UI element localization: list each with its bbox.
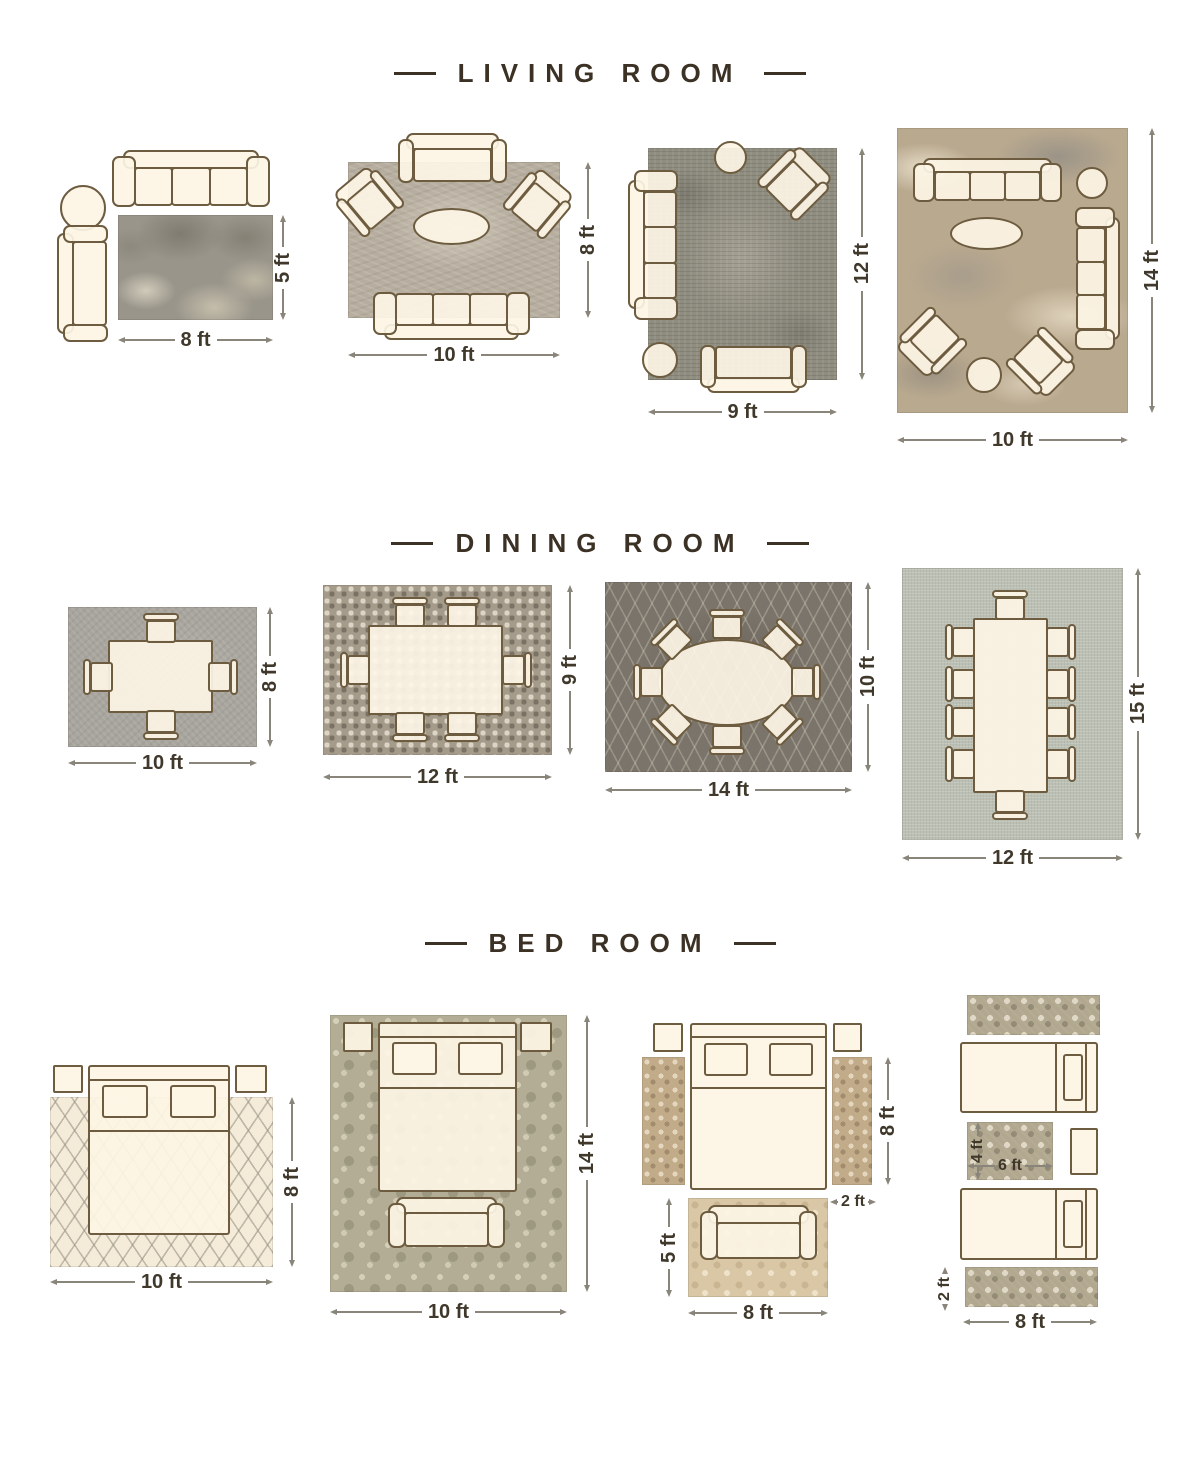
pillow — [102, 1085, 148, 1118]
dim-line — [330, 776, 411, 778]
chair-seat — [952, 669, 975, 699]
dim-line — [1151, 135, 1153, 244]
dim-line — [291, 1203, 293, 1260]
dining-chair — [1046, 746, 1076, 782]
chair-seat — [712, 616, 742, 639]
dimension-10-ft: 10 ft — [348, 346, 560, 364]
dimension-2-ft: 2 ft — [936, 1267, 954, 1307]
dim-arrow-start — [975, 1122, 981, 1129]
dimension-8-ft: 8 ft — [963, 1313, 1097, 1331]
seat-cushion — [1076, 294, 1107, 330]
dim-line — [668, 1205, 670, 1227]
seat-cushion — [715, 346, 792, 379]
bed — [88, 1065, 230, 1235]
sofa-arm-right — [1075, 329, 1115, 350]
dimension-12-ft: 12 ft — [853, 148, 871, 380]
dim-arrow-start — [348, 352, 355, 358]
dim-line — [291, 1104, 293, 1161]
dim-arrow-end — [1149, 406, 1155, 413]
dimension-10-ft: 10 ft — [897, 431, 1128, 449]
title-dash-left — [425, 942, 467, 945]
seat-cushion — [171, 167, 210, 206]
dim-line — [887, 1142, 889, 1178]
dimension-10-ft: 10 ft — [50, 1273, 273, 1291]
dimension-12-ft: 12 ft — [323, 768, 552, 786]
side-table-round — [1076, 167, 1108, 199]
dining-chair — [709, 609, 745, 639]
ottoman-round — [642, 342, 678, 378]
dimension-10-ft: 10 ft — [68, 754, 257, 772]
dimension-14-ft: 14 ft — [578, 1015, 596, 1292]
dining-chair — [340, 652, 370, 688]
blanket — [692, 1087, 825, 1188]
dimension-label: 10 ft — [135, 1272, 188, 1292]
dining-chair-right — [208, 659, 238, 695]
dim-line — [668, 1269, 670, 1291]
chair-back — [230, 659, 238, 695]
dim-arrow-end — [553, 352, 560, 358]
dining-chair — [945, 704, 975, 740]
dining-chair — [392, 597, 428, 627]
chair-seat — [208, 662, 231, 692]
rug-size-placement-guide: LIVING ROOM DINING ROOM BED ROOM 8 ft5 f… — [0, 0, 1200, 1467]
dim-line — [481, 354, 553, 356]
seat-cushion — [1004, 171, 1041, 201]
sofa-arm-left — [791, 345, 807, 388]
dim-line — [587, 261, 589, 311]
headboard — [1085, 1044, 1096, 1111]
dim-arrow-end — [267, 740, 273, 747]
dining-chair — [945, 746, 975, 782]
pillow — [458, 1042, 503, 1075]
sofa-seats — [413, 148, 492, 182]
dim-line — [1039, 439, 1121, 441]
dim-line — [909, 857, 986, 859]
dimension-9-ft: 9 ft — [648, 403, 837, 421]
dimension-2-ft: 2 ft — [830, 1193, 876, 1211]
dim-arrow-end — [584, 1285, 590, 1292]
dim-line — [217, 339, 267, 341]
dim-arrow-end — [942, 1304, 948, 1311]
dim-arrow-end — [1121, 437, 1128, 443]
chair-seat — [146, 620, 176, 643]
runner-rug-bottom-8x2 — [965, 1267, 1098, 1307]
sofa-seats — [715, 346, 792, 379]
loveseat — [57, 225, 108, 342]
chair-seat — [347, 655, 370, 685]
chair-seat — [395, 604, 425, 627]
chair-back — [1068, 666, 1076, 702]
seat-cushion — [432, 293, 471, 326]
dining-chair — [791, 664, 821, 700]
dining-chair — [1046, 666, 1076, 702]
sofa-3-seat — [112, 150, 270, 207]
nightstand — [1070, 1128, 1098, 1175]
runner-rug-top-8x2 — [967, 995, 1100, 1035]
nightstand-right — [833, 1023, 862, 1052]
dim-line — [1151, 297, 1153, 406]
dim-line — [125, 339, 175, 341]
dimension-14-ft: 14 ft — [605, 781, 852, 799]
dim-arrow-start — [585, 162, 591, 169]
living-arrangement-4: 10 ft14 ft — [880, 112, 1185, 462]
dim-line — [464, 776, 545, 778]
chair-seat — [712, 725, 742, 748]
dim-line — [861, 155, 863, 237]
dim-arrow-end — [1135, 833, 1141, 840]
dimension-label: 12 ft — [986, 848, 1039, 868]
dimension-8-ft: 8 ft — [118, 331, 273, 349]
dim-line — [282, 222, 284, 247]
dim-line — [586, 1022, 588, 1127]
title-dash-right — [734, 942, 776, 945]
seat-cushion — [934, 171, 971, 201]
dining-chair — [1046, 624, 1076, 660]
dim-arrow-start — [323, 774, 330, 780]
dimension-label: 2 ft — [838, 1194, 868, 1210]
seat-cushion — [469, 293, 508, 326]
dim-arrow-end — [885, 1178, 891, 1185]
dim-arrow-end — [1116, 855, 1123, 861]
dining-chair — [444, 597, 480, 627]
sofa-arm-right — [246, 156, 270, 207]
seat-cushion — [404, 1212, 488, 1247]
chair-seat — [146, 710, 176, 733]
dim-line — [861, 291, 863, 373]
dining-chair — [502, 652, 532, 688]
dimension-8-ft: 8 ft — [283, 1097, 301, 1267]
dim-arrow-end — [266, 1279, 273, 1285]
dim-line — [282, 289, 284, 314]
bedroom-arrangement-2: 10 ft14 ft — [325, 1010, 610, 1325]
pillow — [170, 1085, 216, 1118]
dining-arrangement-2: 12 ft9 ft — [320, 580, 600, 795]
headboard — [380, 1024, 515, 1038]
sofa-arm-left — [506, 292, 530, 335]
dim-arrow-start — [865, 582, 871, 589]
seat-cushion — [1076, 261, 1107, 297]
chair-seat — [640, 667, 663, 697]
chair-seat — [952, 707, 975, 737]
title-dash-right — [767, 542, 809, 545]
seat-cushion — [72, 241, 107, 325]
dining-chair — [992, 590, 1028, 620]
dimension-15-ft: 15 ft — [1129, 568, 1147, 840]
dim-arrow-end — [567, 748, 573, 755]
dining-arrangement-4: 12 ft15 ft — [900, 565, 1165, 880]
living-arrangement-1: 8 ft5 ft — [50, 138, 320, 378]
seat-cushion — [134, 167, 173, 206]
sofa-back — [707, 377, 799, 393]
title-dash-left — [391, 542, 433, 545]
dim-arrow-start — [885, 1057, 891, 1064]
pillow — [769, 1043, 813, 1076]
dim-arrow-start — [902, 855, 909, 861]
dim-line — [764, 411, 831, 413]
dim-line — [337, 1311, 422, 1313]
seat-cushion — [643, 262, 677, 299]
dim-line — [269, 698, 271, 740]
nightstand-left — [653, 1023, 683, 1052]
dimension-9-ft: 9 ft — [561, 585, 579, 755]
runner-rug-right-2x8 — [832, 1057, 872, 1185]
dining-table — [973, 618, 1048, 793]
sofa-arm-left — [634, 298, 679, 321]
chair-seat — [1046, 707, 1069, 737]
section-title-bed-room: BED ROOM — [0, 928, 1200, 959]
dim-arrow-start — [942, 1267, 948, 1274]
seat-cushion — [395, 293, 434, 326]
chair-seat — [1046, 749, 1069, 779]
dimension-label: 15 ft — [1128, 677, 1148, 730]
dim-arrow-start — [267, 607, 273, 614]
dining-chair — [945, 624, 975, 660]
bedroom-arrangement-3: 8 ft2 ft5 ft8 ft — [630, 1020, 915, 1330]
chair-back — [709, 747, 745, 755]
sofa-seats — [72, 241, 107, 325]
sofa-arm-left — [913, 163, 935, 202]
dimension-5-ft: 5 ft — [660, 1198, 678, 1297]
dim-line — [75, 762, 136, 764]
dim-arrow-end — [845, 787, 852, 793]
dimension-6-ft: 6 ft — [967, 1157, 1053, 1175]
dim-arrow-start — [330, 1309, 337, 1315]
pillow — [392, 1042, 437, 1075]
dining-chair — [945, 666, 975, 702]
dim-arrow-start — [1135, 568, 1141, 575]
runner-rug-left-2x8 — [642, 1057, 685, 1185]
dim-arrow-end — [830, 409, 837, 415]
blanket — [380, 1087, 515, 1190]
dimension-label: 8 ft — [175, 330, 217, 350]
dim-line — [569, 691, 571, 748]
chair-back — [1068, 704, 1076, 740]
dimension-label: 8 ft — [260, 656, 280, 698]
sofa-arm-right — [1040, 163, 1062, 202]
seat-cushion — [1076, 227, 1107, 263]
chair-back — [1068, 624, 1076, 660]
pillow — [1063, 1054, 1083, 1101]
dimension-8-ft: 8 ft — [688, 1304, 828, 1322]
dim-arrow-end — [289, 1260, 295, 1267]
blanket — [90, 1130, 228, 1233]
dim-line — [977, 1129, 979, 1136]
dim-line — [974, 1165, 995, 1167]
dim-line — [695, 1312, 737, 1314]
living-arrangement-2: 10 ft8 ft — [330, 118, 630, 383]
bed-divider — [1055, 1044, 1057, 1111]
dim-line — [779, 1312, 821, 1314]
dimension-label: 10 ft — [136, 753, 189, 773]
dim-arrow-start — [963, 1319, 970, 1325]
sofa-seats — [134, 167, 248, 206]
sofa-seats — [716, 1222, 800, 1259]
dim-arrow-start — [68, 760, 75, 766]
sofa-arm-right — [487, 1203, 505, 1248]
sofa-arm-right — [799, 1211, 817, 1260]
dimension-label: 10 ft — [858, 650, 878, 703]
sofa-seats — [395, 293, 508, 326]
dim-arrow-start — [648, 409, 655, 415]
dim-arrow-end — [821, 1310, 828, 1316]
dimension-12-ft: 12 ft — [902, 849, 1123, 867]
dim-arrow-end — [1090, 1319, 1097, 1325]
bed — [378, 1022, 517, 1192]
dim-line — [970, 1321, 1009, 1323]
dim-line — [475, 1311, 560, 1313]
dimension-label: 9 ft — [722, 402, 764, 422]
dim-arrow-start — [897, 437, 904, 443]
dim-arrow-end — [859, 373, 865, 380]
seat-cushion — [413, 148, 492, 182]
title-dash-left — [394, 72, 436, 75]
dim-line — [355, 354, 427, 356]
dim-arrow-start — [280, 215, 286, 222]
twin-bed-top — [960, 1042, 1098, 1113]
chair-seat — [995, 597, 1025, 620]
dining-table — [368, 625, 503, 715]
dining-table — [108, 640, 213, 713]
dim-arrow-start — [967, 1163, 974, 1169]
dimension-label: 8 ft — [1009, 1312, 1051, 1332]
dimension-label: 9 ft — [560, 649, 580, 691]
nightstand-right — [520, 1022, 552, 1052]
dimension-8-ft: 8 ft — [261, 607, 279, 747]
chair-back — [1068, 746, 1076, 782]
dimension-10-ft: 10 ft — [859, 582, 877, 772]
dim-arrow-end — [545, 774, 552, 780]
sofa-seats — [643, 191, 677, 299]
dimension-label: 10 ft — [427, 345, 480, 365]
sofa-arm-right — [373, 292, 397, 335]
section-title-dining-room: DINING ROOM — [0, 528, 1200, 559]
dim-arrow-end — [585, 311, 591, 318]
dim-arrow-start — [859, 148, 865, 155]
headboard — [692, 1025, 825, 1038]
bed-divider — [1055, 1190, 1057, 1258]
loveseat — [398, 133, 507, 183]
sofa-seats — [404, 1212, 488, 1247]
chair-seat — [447, 604, 477, 627]
sofa-seats — [1076, 227, 1107, 330]
dim-arrow-start — [118, 337, 125, 343]
dim-arrow-end — [266, 337, 273, 343]
dim-arrow-start — [688, 1310, 695, 1316]
dim-line — [904, 439, 986, 441]
dim-line — [867, 589, 869, 650]
dining-chair-top — [143, 613, 179, 643]
dimension-label: 8 ft — [737, 1303, 779, 1323]
dimension-label: 14 ft — [1142, 244, 1162, 297]
chair-back — [813, 664, 821, 700]
dim-line — [1025, 1165, 1046, 1167]
dim-arrow-end — [865, 765, 871, 772]
bedroom-arrangement-1: 10 ft8 ft — [40, 1050, 315, 1300]
dining-chair — [444, 712, 480, 742]
dimension-label: 8 ft — [282, 1161, 302, 1203]
sofa-arm-right — [634, 170, 679, 193]
dim-line — [57, 1281, 135, 1283]
dim-line — [755, 789, 845, 791]
chair-seat — [502, 655, 525, 685]
dim-arrow-start — [289, 1097, 295, 1104]
dining-chair — [633, 664, 663, 700]
headboard — [90, 1067, 228, 1081]
chair-back — [444, 734, 480, 742]
dining-arrangement-1: 10 ft8 ft — [55, 595, 315, 785]
section-title-text: LIVING ROOM — [458, 58, 743, 89]
dim-arrow-end — [1046, 1163, 1053, 1169]
chair-back — [992, 812, 1028, 820]
section-title-living-room: LIVING ROOM — [0, 58, 1200, 89]
dining-chair-left — [83, 659, 113, 695]
dim-arrow-end — [280, 313, 286, 320]
dim-line — [587, 169, 589, 219]
dimension-label: 12 ft — [411, 767, 464, 787]
dimension-5-ft: 5 ft — [274, 215, 292, 320]
dim-arrow-start — [666, 1198, 672, 1205]
dimension-label: 2 ft — [937, 1274, 953, 1304]
pillow — [704, 1043, 748, 1076]
section-title-text: BED ROOM — [489, 928, 712, 959]
sofa-arm-left — [388, 1203, 406, 1248]
dimension-label: 5 ft — [273, 247, 293, 289]
chair-seat — [952, 627, 975, 657]
seat-cushion — [643, 226, 677, 263]
dim-line — [586, 1180, 588, 1285]
sofa-arm-left — [112, 156, 136, 207]
foot-bench — [388, 1197, 505, 1248]
chair-back — [143, 732, 179, 740]
dim-line — [188, 1281, 266, 1283]
sofa-3-seat-right — [1075, 207, 1120, 350]
seat-cushion — [643, 191, 677, 228]
chair-seat — [995, 790, 1025, 813]
dimension-label: 14 ft — [702, 780, 755, 800]
dimension-label: 14 ft — [577, 1127, 597, 1180]
dim-line — [887, 1064, 889, 1100]
dim-line — [867, 704, 869, 765]
chair-seat — [952, 749, 975, 779]
pillow — [1063, 1200, 1083, 1248]
dim-arrow-start — [605, 787, 612, 793]
dim-arrow-start — [830, 1199, 837, 1205]
sofa-arm-left — [398, 139, 414, 184]
sofa-arm-right — [63, 225, 108, 243]
dim-arrow-start — [584, 1015, 590, 1022]
seat-cushion — [209, 167, 248, 206]
dim-line — [189, 762, 250, 764]
chair-seat — [90, 662, 113, 692]
dim-line — [1039, 857, 1116, 859]
chair-back — [392, 734, 428, 742]
dimension-label: 12 ft — [852, 237, 872, 290]
sofa-3-seat — [913, 158, 1062, 202]
sofa-arm-left — [1075, 207, 1115, 228]
dining-chair — [709, 725, 745, 755]
section-title-text: DINING ROOM — [455, 528, 744, 559]
dim-arrow-start — [1149, 128, 1155, 135]
dimension-14-ft: 14 ft — [1143, 128, 1161, 413]
sofa-arm-left — [700, 1211, 718, 1260]
title-dash-right — [764, 72, 806, 75]
dimension-label: 5 ft — [659, 1227, 679, 1269]
sofa-back — [384, 324, 519, 340]
dim-line — [1137, 575, 1139, 677]
dim-arrow-end — [250, 760, 257, 766]
dim-line — [655, 411, 722, 413]
dimension-label: 8 ft — [578, 219, 598, 261]
